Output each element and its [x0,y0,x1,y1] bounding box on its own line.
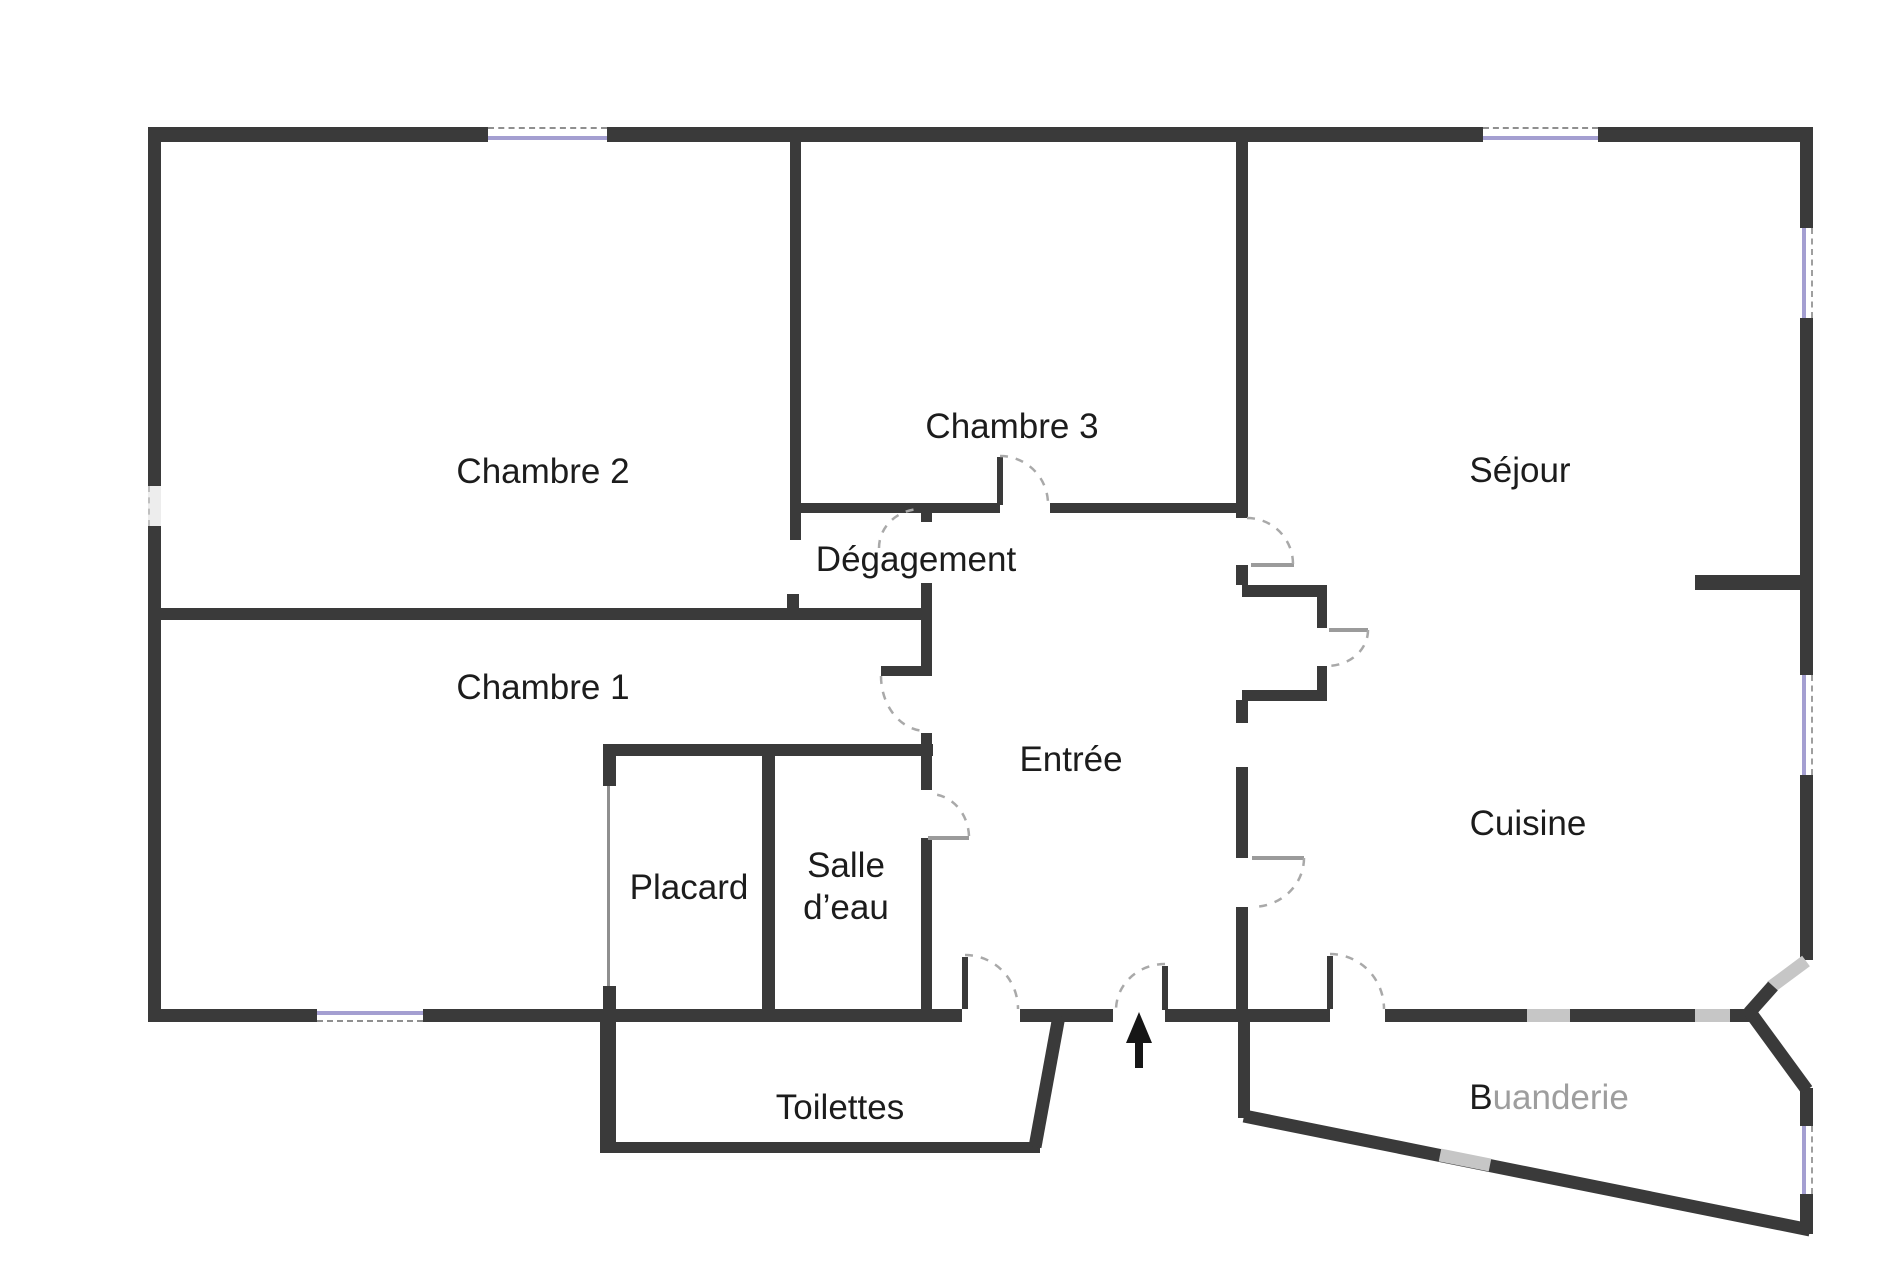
room-label-entree: Entrée [1019,739,1122,781]
room-label-salle-deau: Salle d’eau [803,845,889,929]
door-arc-duct [1327,630,1368,666]
salle-deau-line-2: d’eau [803,888,889,927]
door-arc-chambre1 [881,676,926,731]
room-label-chambre-2: Chambre 2 [456,451,629,493]
door-arc-salledeau [930,794,969,836]
room-label-chambre-3: Chambre 3 [925,406,1098,448]
buanderie-part-1: B [1469,1078,1492,1117]
room-label-degagement: Dégagement [816,539,1016,581]
room-label-buanderie: Buanderie [1469,1077,1629,1119]
door-arc-sejour [1247,518,1293,564]
room-label-sejour: Séjour [1469,450,1570,492]
salle-deau-line-1: Salle [807,846,885,885]
wall-buanderie-slant [1244,1116,1810,1230]
buanderie-part-2: uanderie [1493,1078,1629,1117]
door-arc-cuisine-divider [1252,858,1304,907]
door-arc-chambre3 [1000,456,1048,504]
room-label-cuisine: Cuisine [1470,803,1587,845]
wall-notch-lower [1749,986,1773,1013]
room-label-placard: Placard [630,867,749,909]
room-label-toilettes: Toilettes [776,1087,904,1129]
room-label-chambre-1: Chambre 1 [456,667,629,709]
floorplan: Chambre 2 Chambre 3 Séjour Dégagement Ch… [0,0,1884,1268]
door-arc-cuisine [1330,954,1384,1009]
wall-notch-upper [1771,961,1806,987]
door-arc-front [1116,964,1165,1010]
wall-toilettes-slant [1035,1016,1059,1147]
entrance-arrow-icon [1126,1012,1152,1068]
door-arc-interior [965,955,1018,1009]
wall-notch-return [1750,1012,1807,1090]
